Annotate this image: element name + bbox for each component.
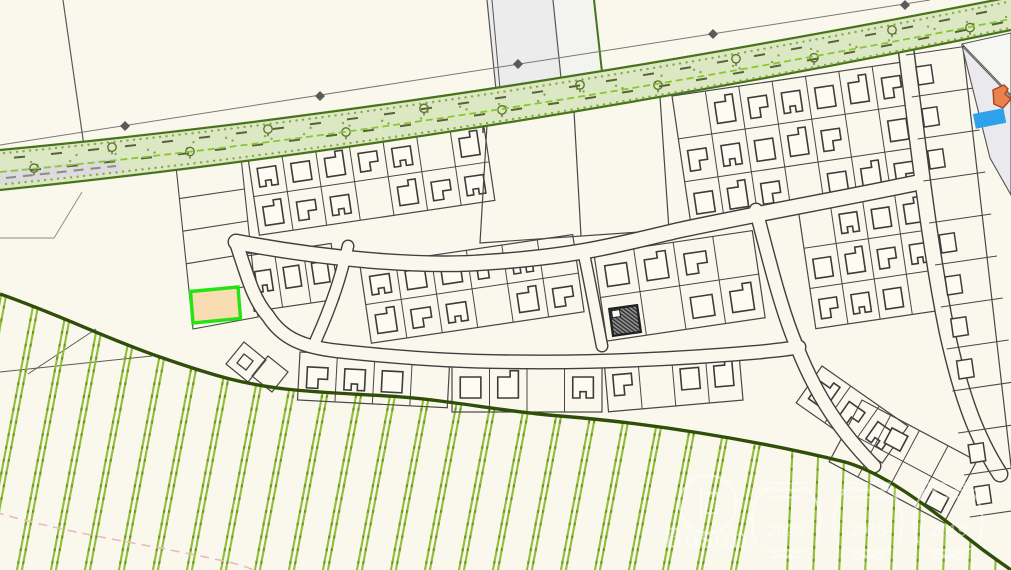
building-footprint — [815, 85, 836, 108]
building-footprint — [690, 294, 715, 318]
building-footprint — [754, 138, 775, 161]
building-footprint — [291, 161, 312, 182]
building-footprint — [381, 371, 403, 393]
building-footprint — [939, 233, 957, 253]
building-footprint — [928, 149, 946, 169]
hatched-building — [609, 305, 640, 336]
award-badge-year: 2016 — [849, 521, 887, 540]
building-footprint — [922, 107, 940, 127]
watermark-brand: Bosen — [663, 524, 748, 554]
building-footprint — [813, 257, 834, 279]
building-footprint — [283, 265, 302, 288]
building-footprint — [694, 191, 715, 214]
building-footprint — [916, 65, 934, 85]
building-footprint — [951, 317, 969, 337]
building-footprint — [883, 287, 904, 309]
cadastral-map[interactable]: Bosen 202320162019 — [0, 0, 1011, 570]
building-footprint — [871, 207, 892, 229]
building-footprint — [968, 443, 986, 463]
building-footprint — [605, 263, 630, 287]
building-footprint — [680, 367, 700, 390]
building-footprint — [460, 377, 481, 398]
building-footprint — [888, 118, 909, 141]
building-footprint — [974, 485, 992, 505]
award-badge-year: 2023 — [767, 521, 805, 540]
map-viewport[interactable]: Bosen 202320162019 — [0, 0, 1011, 570]
selected-parcel[interactable] — [191, 287, 241, 323]
building-footprint — [945, 275, 963, 295]
building-footprint — [957, 359, 975, 379]
award-badge-year: 2019 — [929, 521, 967, 540]
